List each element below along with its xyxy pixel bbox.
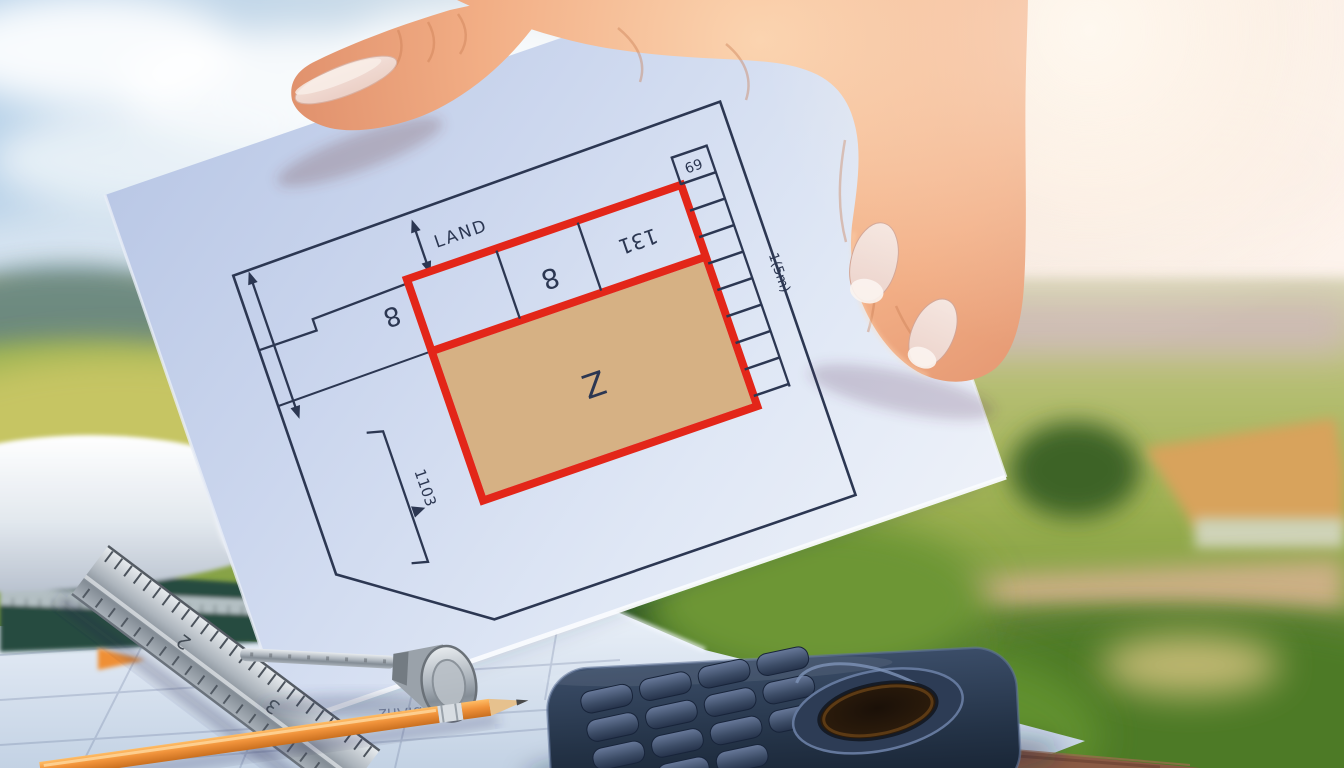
farm-wall — [1195, 518, 1344, 548]
photo-scene: ZUbIAnz — [0, 0, 1344, 768]
photo-canvas: ZUbIAnz — [0, 0, 1344, 768]
